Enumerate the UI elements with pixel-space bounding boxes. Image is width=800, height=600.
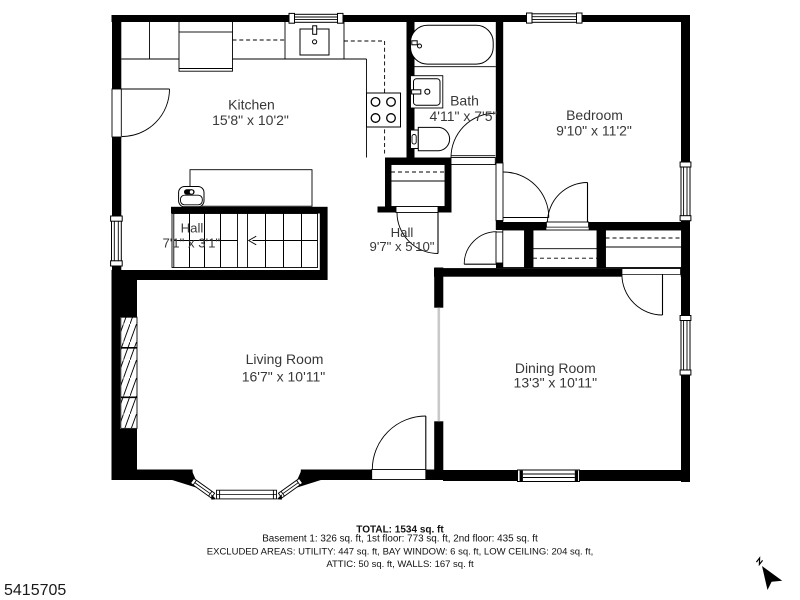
svg-text:Bedroom: Bedroom — [566, 107, 623, 123]
svg-text:13'3" x 10'11": 13'3" x 10'11" — [514, 375, 598, 391]
svg-text:Hall: Hall — [391, 225, 414, 240]
svg-text:5415705: 5415705 — [4, 582, 66, 599]
svg-text:Basement 1: 326 sq. ft, 1st fl: Basement 1: 326 sq. ft, 1st floor: 773 s… — [262, 534, 538, 545]
svg-text:16'7" x 10'11": 16'7" x 10'11" — [242, 369, 326, 385]
svg-text:Dining Room: Dining Room — [515, 360, 596, 376]
svg-text:9'7" x 5'10": 9'7" x 5'10" — [370, 239, 435, 254]
svg-text:9'10" x 11'2": 9'10" x 11'2" — [556, 122, 632, 138]
svg-text:ATTIC: 50 sq. ft, WALLS: 167 s: ATTIC: 50 sq. ft, WALLS: 167 sq. ft — [326, 559, 474, 570]
svg-text:EXCLUDED AREAS: UTILITY: 447 s: EXCLUDED AREAS: UTILITY: 447 sq. ft, BAY… — [207, 547, 593, 558]
svg-text:Hall: Hall — [181, 221, 204, 236]
svg-text:Living Room: Living Room — [246, 351, 324, 367]
svg-text:4'11" x 7'5": 4'11" x 7'5" — [430, 108, 498, 124]
svg-text:7'1" x 3'1": 7'1" x 3'1" — [162, 236, 220, 251]
svg-text:15'8" x 10'2": 15'8" x 10'2" — [212, 112, 289, 128]
svg-text:Bath: Bath — [450, 93, 479, 109]
svg-text:Kitchen: Kitchen — [228, 97, 275, 113]
